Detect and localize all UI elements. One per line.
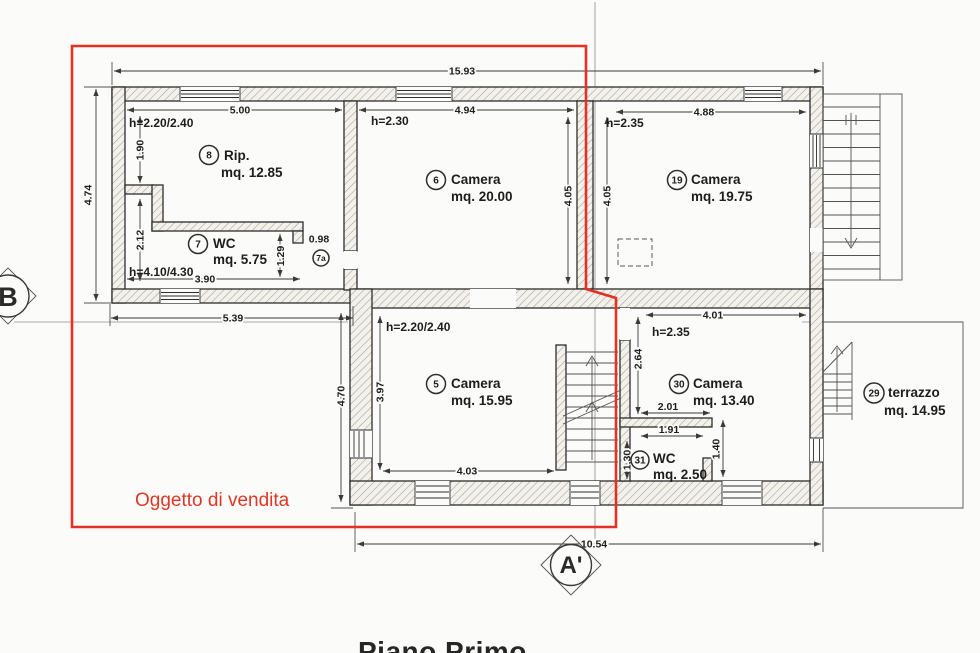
room-area: mq. 12.85	[221, 165, 283, 180]
room-label-7a: 7a	[313, 250, 329, 266]
dim-r5-height: 3.97	[375, 382, 387, 403]
room-name: WC	[653, 451, 676, 466]
room-number: 31	[634, 456, 646, 467]
wall	[125, 185, 153, 194]
room-area: mq. 13.40	[693, 393, 755, 408]
room-area: mq. 14.95	[884, 403, 946, 418]
door-gap	[470, 289, 516, 308]
section-letter: B	[0, 282, 18, 312]
wall	[344, 101, 357, 251]
terrace-door	[810, 438, 823, 462]
dim-wc-niche: 1.29	[275, 246, 287, 267]
wall	[293, 231, 303, 243]
room-label-camera19: 19 Camera mq. 19.75 h=2.35	[606, 116, 753, 204]
room-height: h=2.35	[652, 325, 690, 339]
dim-r8-upper: 1.90	[135, 140, 147, 161]
wall	[344, 269, 357, 290]
room-number: 29	[868, 389, 880, 400]
room-area: mq. 20.00	[451, 189, 513, 204]
room-name: Camera	[693, 376, 743, 391]
floorplan-canvas: 15.93 5.00 4.94 4.88 3.90 5.39 4.03 4.01…	[0, 0, 980, 653]
door-gap	[810, 228, 823, 252]
room-name: Rip.	[224, 148, 250, 163]
window	[722, 481, 762, 505]
room-height: h=2.30	[371, 114, 409, 128]
room-number: 7a	[316, 253, 326, 263]
room-name: terrazzo	[888, 385, 940, 400]
dim-top-total: 15.93	[449, 66, 475, 78]
room-label-camera6: 6 Camera mq. 20.00 h=2.30	[371, 114, 513, 204]
room-label-rip: 8 Rip. mq. 12.85 h=2.20/2.40	[129, 116, 283, 180]
dim-r8-width: 5.00	[230, 105, 251, 117]
room-height: h=2.35	[606, 116, 644, 130]
stair-up-arrow	[586, 356, 598, 460]
room-number: 5	[433, 380, 439, 391]
dim-wc-width: 3.90	[195, 274, 216, 286]
dim-r5-width: 4.03	[457, 466, 478, 478]
room-label-camera30: 30 Camera mq. 13.40 h=2.35	[652, 325, 755, 408]
window	[350, 430, 372, 458]
room-area: mq. 19.75	[691, 189, 753, 204]
room-number: 30	[673, 380, 685, 391]
dim-r19-width: 4.88	[694, 107, 715, 119]
floorplan-page: 15.93 5.00 4.94 4.88 3.90 5.39 4.03 4.01…	[0, 0, 980, 653]
room-number: 19	[671, 176, 683, 187]
dashed-fixture	[618, 239, 652, 266]
dim-r8-lower: 2.12	[135, 230, 147, 251]
wall	[112, 289, 355, 303]
room-label-wc7: 7 WC mq. 5.75 h=4.10/4.30	[129, 235, 268, 280]
stair-down-arrow	[845, 113, 857, 248]
dim-left-total: 4.74	[83, 185, 95, 206]
door-gap	[344, 251, 357, 269]
dim-left-block: 5.39	[223, 313, 244, 325]
dim-r30-inner2: 1.91	[659, 424, 680, 436]
dim-r19-left: 4.05	[602, 186, 614, 207]
drawing-title: Piano Primo	[358, 636, 527, 653]
wall	[355, 289, 823, 308]
dim-r30-door: 1.40	[711, 439, 723, 460]
room-label-wc31: 31 WC mq. 2.50	[631, 451, 707, 482]
dim-r30-inner: 2.01	[658, 401, 679, 413]
dim-r6-height: 4.05	[563, 186, 575, 207]
wall	[556, 345, 566, 470]
dim-r6-width: 4.94	[455, 105, 476, 117]
room-number: 6	[433, 176, 439, 187]
room-label-terrazzo: 29 terrazzo mq. 14.95	[864, 383, 946, 418]
room-name: WC	[213, 236, 236, 251]
room-label-camera5: 5 Camera mq. 15.95 h=2.20/2.40	[386, 320, 513, 408]
wall	[152, 222, 303, 231]
room-name: Camera	[451, 376, 501, 391]
window	[415, 481, 450, 505]
room-height: h=2.20/2.40	[129, 116, 194, 130]
dim-niche-width: 0.98	[309, 234, 330, 246]
room-height: h=2.20/2.40	[386, 320, 451, 334]
section-marker-b: B	[0, 268, 36, 324]
room-height: h=4.10/4.30	[129, 265, 194, 279]
staircase-internal	[563, 352, 621, 462]
room-area: mq. 15.95	[451, 393, 513, 408]
staircase-external-upper	[823, 94, 902, 280]
room-number: 7	[195, 240, 201, 251]
dim-r30-left: 2.64	[633, 349, 645, 370]
room-number: 8	[206, 151, 212, 162]
room-name: Camera	[691, 172, 741, 187]
section-letter: A'	[559, 552, 582, 579]
sale-label: Oggetto di vendita	[135, 490, 290, 511]
room-area: mq. 2.50	[653, 467, 707, 482]
wall	[810, 289, 823, 505]
room-name: Camera	[451, 172, 501, 187]
dim-r30-width: 4.01	[703, 310, 724, 322]
door-gap	[620, 308, 630, 340]
wall	[810, 87, 823, 289]
window	[570, 481, 600, 505]
wall	[112, 87, 125, 303]
dim-lower-left: 4.70	[336, 386, 348, 407]
room-area: mq. 5.75	[213, 252, 268, 267]
